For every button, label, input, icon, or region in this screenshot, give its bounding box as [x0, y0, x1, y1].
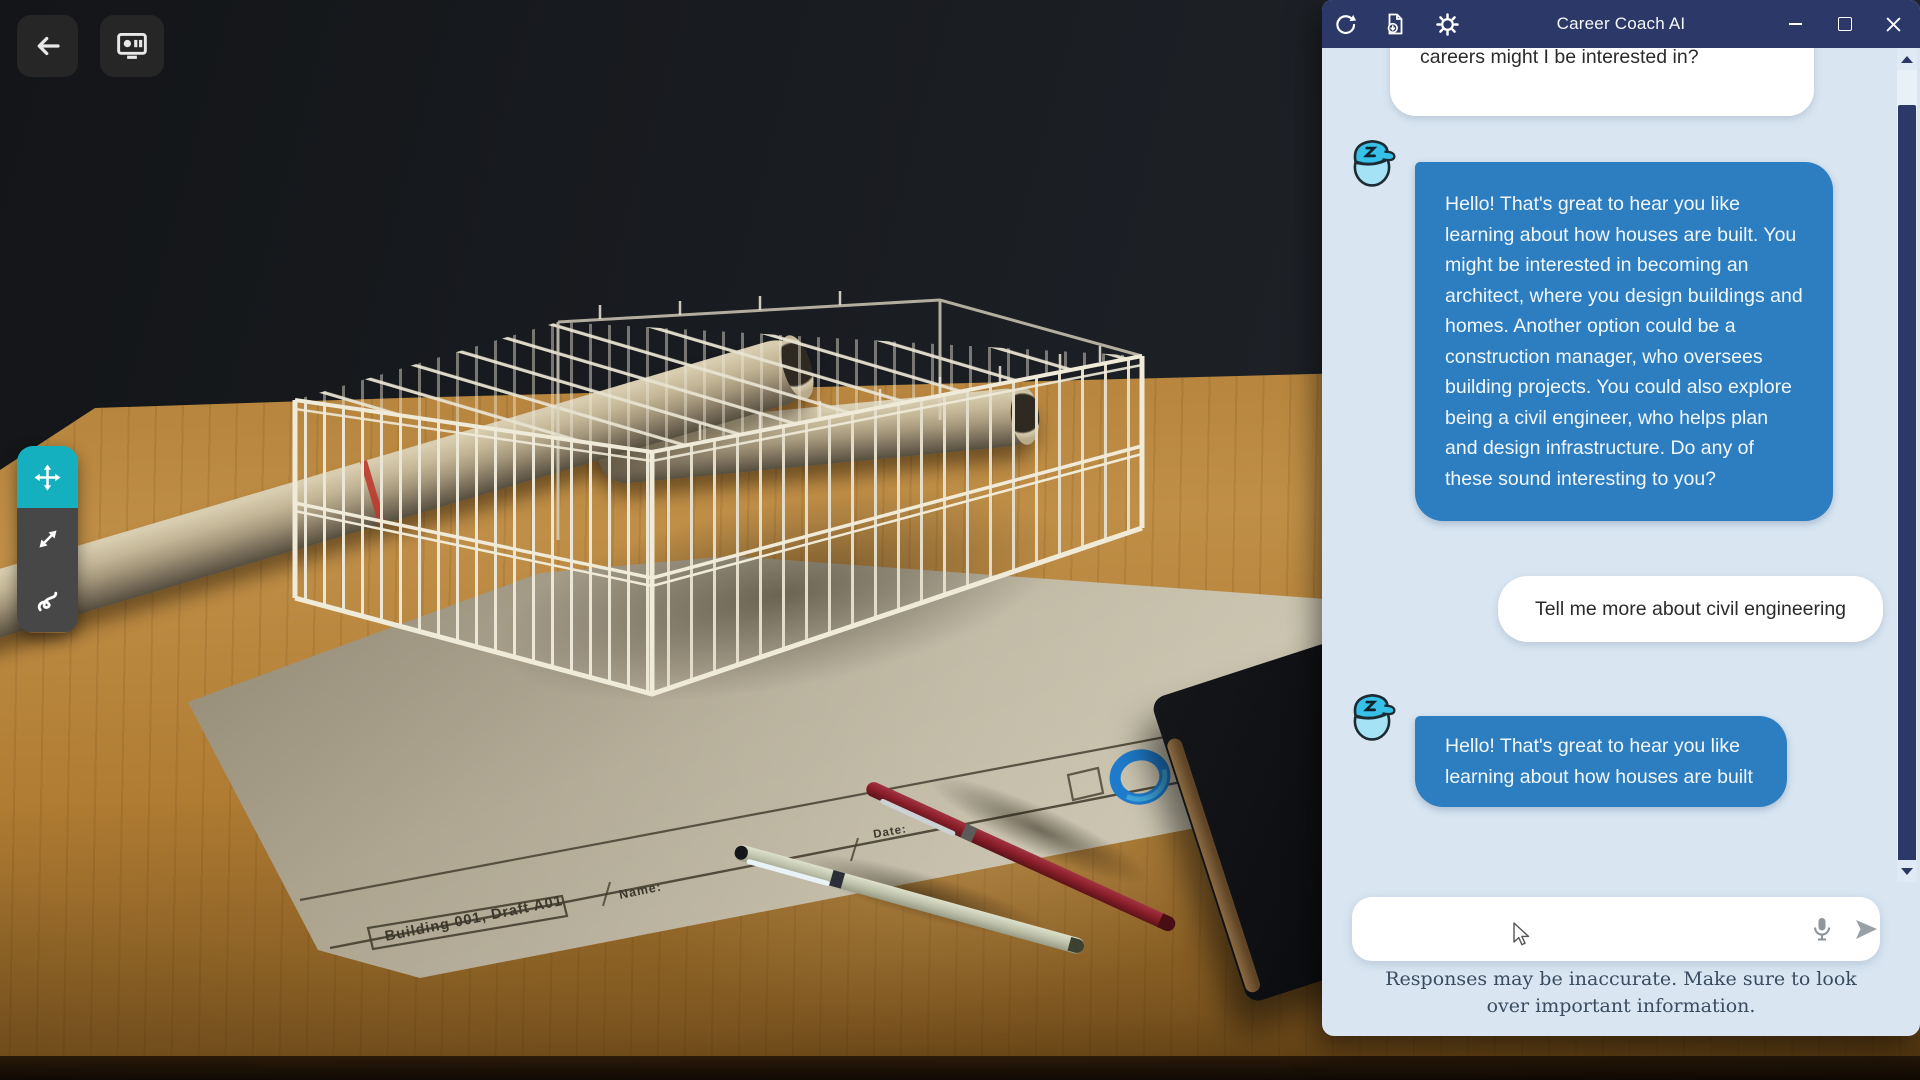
transform-toolbar	[17, 446, 78, 633]
send-icon	[1853, 916, 1879, 942]
minimize-icon	[1789, 23, 1802, 25]
chat-message-assistant: Hello! That's great to hear you like lea…	[1415, 716, 1787, 807]
close-icon	[1886, 17, 1901, 32]
chat-composer	[1352, 897, 1880, 961]
scroll-down-icon	[1901, 868, 1913, 875]
coach-avatar	[1347, 686, 1397, 742]
screen-share-button[interactable]	[100, 15, 164, 77]
desk-front-edge	[0, 1056, 1920, 1080]
chat-disclaimer: Responses may be inaccurate. Make sure t…	[1361, 966, 1881, 1020]
tool-scale[interactable]	[17, 508, 78, 570]
minimize-button[interactable]	[1777, 0, 1813, 48]
tool-draw[interactable]	[17, 570, 78, 632]
back-button[interactable]	[17, 15, 78, 77]
screen-share-icon	[115, 30, 149, 62]
chat-scrollbar[interactable]	[1897, 48, 1917, 882]
scale-icon	[35, 526, 61, 552]
microphone-icon	[1809, 915, 1835, 943]
scroll-up-icon	[1901, 56, 1913, 63]
app-stage: Building 001, Draft A01 Name: Date: pace	[0, 0, 1920, 1080]
chat-message-text: Hello! That's great to hear you like lea…	[1445, 193, 1803, 490]
chat-message-text: Hello! That's great to hear you like lea…	[1445, 735, 1753, 788]
coach-avatar	[1347, 132, 1397, 188]
maximize-button[interactable]	[1827, 0, 1863, 48]
microphone-button[interactable]	[1804, 911, 1840, 947]
scrollbar-thumb[interactable]	[1898, 105, 1916, 862]
back-arrow-icon	[33, 31, 63, 61]
scroll-up-button[interactable]	[1897, 48, 1917, 70]
chat-message-user-truncated: careers might I be interested in?	[1390, 48, 1814, 116]
close-button[interactable]	[1875, 0, 1911, 48]
chat-titlebar: Career Coach AI	[1322, 0, 1920, 48]
chat-window: Career Coach AI careers might I be inter…	[1322, 0, 1920, 1036]
draw-icon	[34, 588, 61, 615]
green-pen-band	[829, 870, 845, 889]
move-icon	[34, 464, 61, 491]
chat-message-text: Tell me more about civil engineering	[1535, 594, 1846, 625]
scroll-down-button[interactable]	[1897, 860, 1917, 882]
chat-message-text: careers might I be interested in?	[1420, 48, 1699, 72]
chat-input[interactable]	[1372, 897, 1756, 963]
send-button[interactable]	[1848, 911, 1884, 947]
chat-message-assistant: Hello! That's great to hear you like lea…	[1415, 162, 1833, 521]
chat-message-list: careers might I be interested in? Hello!…	[1322, 48, 1920, 882]
maximize-icon	[1838, 17, 1852, 31]
tool-move[interactable]	[17, 446, 78, 508]
chat-message-user: Tell me more about civil engineering	[1498, 576, 1883, 642]
